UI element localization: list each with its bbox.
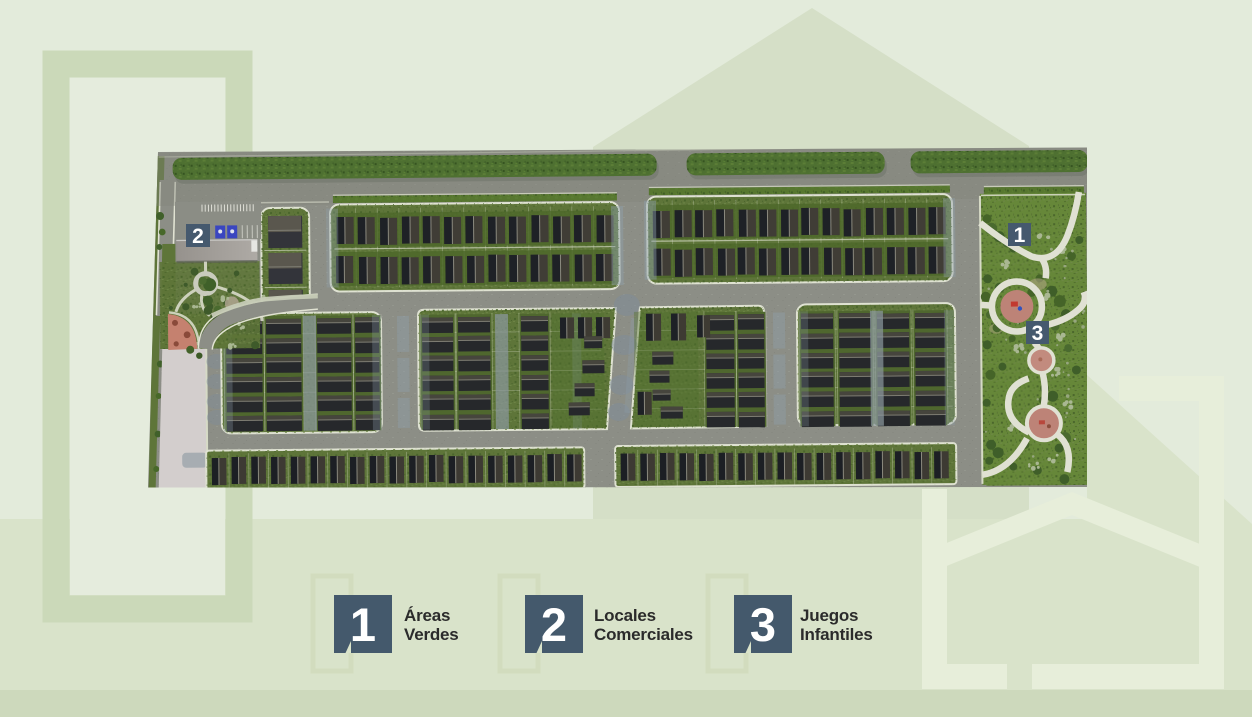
svg-text:Juegos: Juegos [800, 606, 858, 625]
svg-text:1: 1 [1014, 224, 1026, 247]
svg-text:2: 2 [541, 598, 567, 651]
svg-text:1: 1 [350, 598, 376, 651]
svg-text:Verdes: Verdes [404, 625, 459, 644]
svg-text:Comerciales: Comerciales [594, 625, 693, 644]
svg-text:3: 3 [750, 598, 776, 651]
svg-text:Locales: Locales [594, 606, 656, 625]
svg-text:Áreas: Áreas [404, 606, 450, 625]
svg-text:2: 2 [192, 225, 204, 248]
svg-text:3: 3 [1032, 322, 1044, 345]
svg-text:Infantiles: Infantiles [800, 625, 873, 644]
